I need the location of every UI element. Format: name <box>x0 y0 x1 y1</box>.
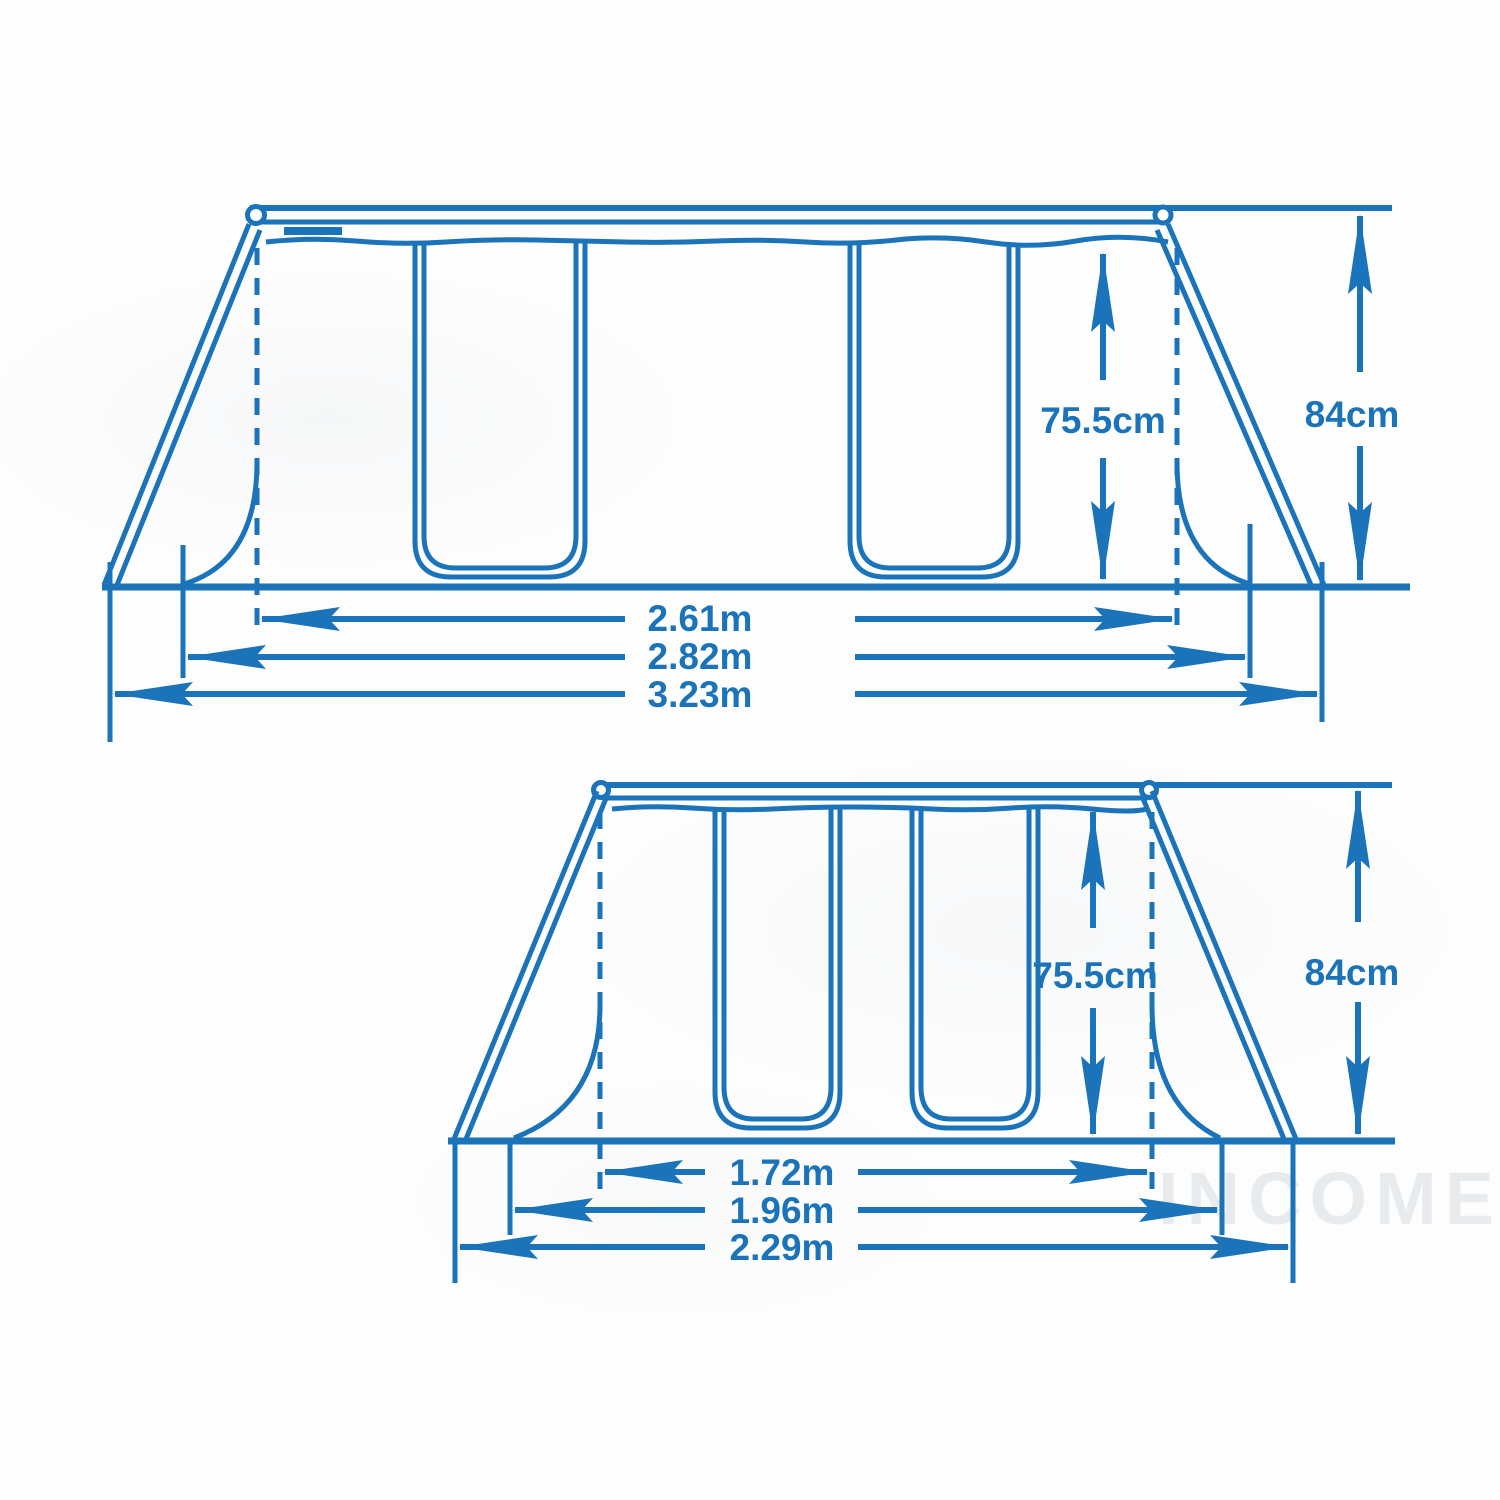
dim-frame-height-bottom-view: 84cm <box>1305 791 1400 1134</box>
top-pool-frame <box>102 207 1410 743</box>
dim-base-width-top-view: 3.23m <box>115 674 1317 715</box>
dim-label-wall-height: 75.5cm <box>1040 400 1166 441</box>
dim-inner-width-bottom-view: 1.72m <box>605 1152 1147 1193</box>
rail-sleeve <box>284 227 342 235</box>
liner-bulge-right <box>1152 1005 1220 1138</box>
watermark-text: INCOME <box>1158 1157 1500 1240</box>
dim-frame-height-top-view: 84cm <box>1305 216 1400 580</box>
dim-label-wall-height: 75.5cm <box>1032 955 1158 996</box>
rail-end-cap-right <box>1155 207 1171 223</box>
dim-label-top-width: 2.82m <box>648 636 753 677</box>
dim-top-width-bottom-view: 1.96m <box>515 1190 1217 1231</box>
u-support-1-inner <box>724 808 831 1119</box>
dim-wall-height-top-view: 75.5cm <box>1040 254 1166 579</box>
u-support-2-inner <box>859 243 1009 568</box>
dim-label-top-width: 1.96m <box>730 1190 835 1231</box>
dim-label-inner-width: 2.61m <box>648 598 753 639</box>
diagram-svg: INCOME <box>0 0 1500 1500</box>
dim-label-base-width: 2.29m <box>730 1227 835 1268</box>
u-support-1-inner <box>424 243 576 568</box>
rail-end-cap-left <box>248 207 265 224</box>
u-support-1-outer <box>715 808 840 1128</box>
dim-inner-width-top-view: 2.61m <box>262 598 1172 639</box>
leg-right-outer <box>1152 791 1296 1139</box>
dim-label-inner-width: 1.72m <box>730 1152 835 1193</box>
leg-left-inner <box>466 796 607 1139</box>
dim-label-frame-height: 84cm <box>1305 952 1400 993</box>
u-support-2-outer <box>850 243 1018 577</box>
liner-bulge-right <box>1177 462 1250 584</box>
liner-top-edge <box>612 807 1147 811</box>
liner-top-edge <box>266 237 1168 245</box>
leg-left-outer <box>454 791 597 1139</box>
top-diagram: 75.5cm 84cm 2.61m 2.82m 3.23m <box>102 207 1410 743</box>
u-support-1-outer <box>415 243 585 577</box>
leg-left-outer <box>104 224 249 585</box>
u-support-2-outer <box>912 808 1038 1128</box>
liner-bulge-left <box>514 1005 600 1138</box>
leg-right-inner <box>1142 796 1284 1139</box>
leg-left-inner <box>117 230 260 585</box>
leg-right-inner <box>1157 230 1311 585</box>
u-support-2-inner <box>921 808 1029 1119</box>
liner-bulge-left <box>184 462 257 584</box>
dim-top-width-top-view: 2.82m <box>188 636 1245 677</box>
pool-dimension-diagram: INCOME <box>0 0 1500 1500</box>
dim-label-frame-height: 84cm <box>1305 394 1400 435</box>
dim-label-base-width: 3.23m <box>648 674 753 715</box>
dim-wall-height-bottom-view: 75.5cm <box>1032 812 1158 1134</box>
